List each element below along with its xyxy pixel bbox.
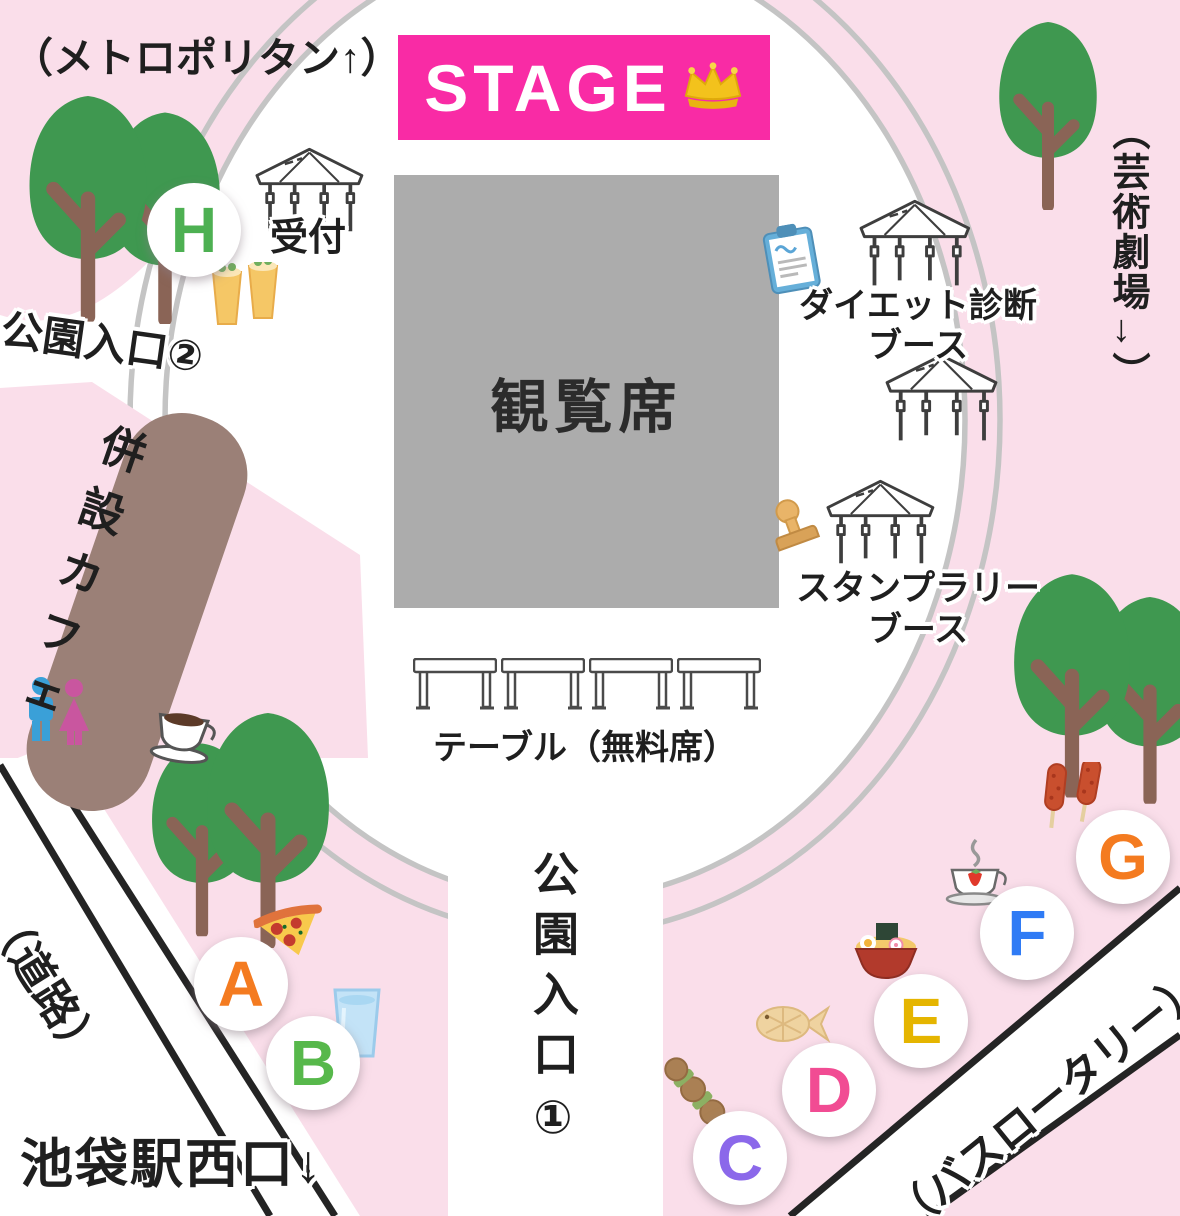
coffee-cup-icon [145, 694, 222, 774]
event-map: STAGE [0, 0, 1180, 1216]
crown-icon [682, 62, 744, 114]
stall-h-letter: H [171, 198, 217, 262]
stall-a: A [194, 937, 288, 1031]
stall-g: G [1076, 810, 1170, 904]
stall-e-letter: E [900, 989, 943, 1053]
stall-a-letter: A [218, 952, 264, 1016]
art-theater-label: （芸術劇場→） [1100, 112, 1155, 392]
reception-label: 受付 [270, 206, 346, 261]
diet-booth-label2: ブース [768, 318, 1068, 367]
beer-icon [210, 262, 280, 335]
stall-b: B [266, 1016, 360, 1110]
viewing-area-label: 観覧席 [394, 360, 779, 444]
stamp-booth-label2: ブース [768, 602, 1068, 651]
stall-c-letter: C [717, 1126, 763, 1190]
stall-e: E [874, 974, 968, 1068]
stage-label: STAGE [424, 50, 671, 126]
stall-f: F [980, 886, 1074, 980]
stall-h: H [147, 183, 241, 277]
metropolitan-label: （メトロポリタン↑） [12, 24, 402, 84]
stamp-icon [768, 498, 822, 563]
stall-d: D [782, 1043, 876, 1137]
stall-c: C [693, 1111, 787, 1205]
station-west-exit-label: 池袋駅西口↓ [20, 1122, 324, 1198]
stall-d-letter: D [806, 1058, 852, 1122]
park-entrance1-label: 公園入口① [520, 850, 586, 1158]
tables-label: テーブル（無料席） [400, 720, 770, 769]
stage-banner: STAGE [398, 35, 770, 140]
stall-f-letter: F [1007, 901, 1046, 965]
stall-b-letter: B [290, 1031, 336, 1095]
stall-g-letter: G [1098, 825, 1148, 889]
